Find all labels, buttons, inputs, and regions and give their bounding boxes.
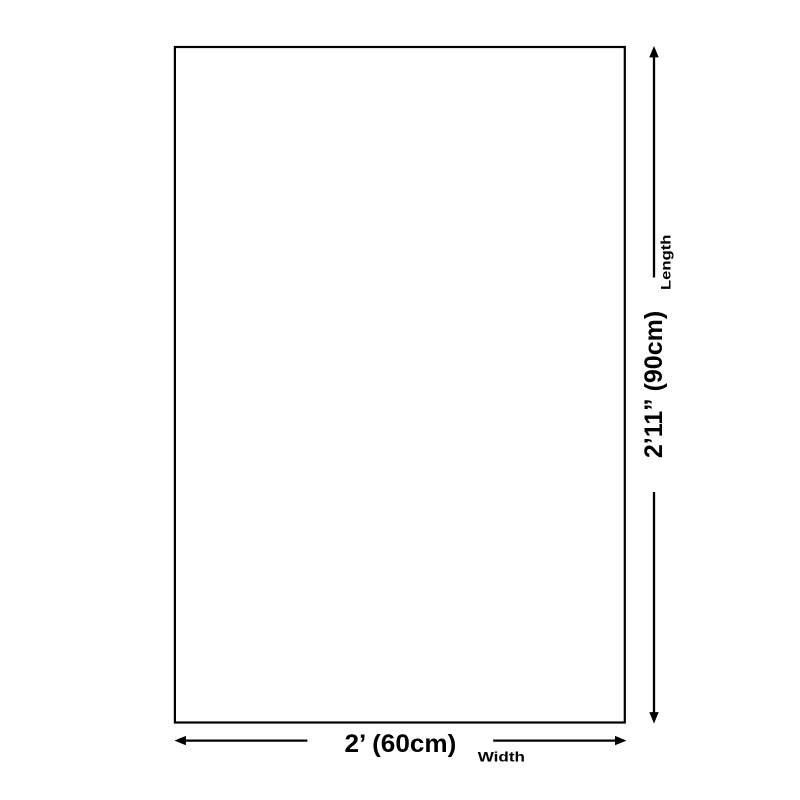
svg-text:Length: Length: [659, 235, 674, 290]
svg-text:Width: Width: [478, 750, 525, 765]
svg-text:2’ (60cm): 2’ (60cm): [345, 730, 457, 757]
svg-text:2’11” (90cm): 2’11” (90cm): [640, 311, 668, 458]
